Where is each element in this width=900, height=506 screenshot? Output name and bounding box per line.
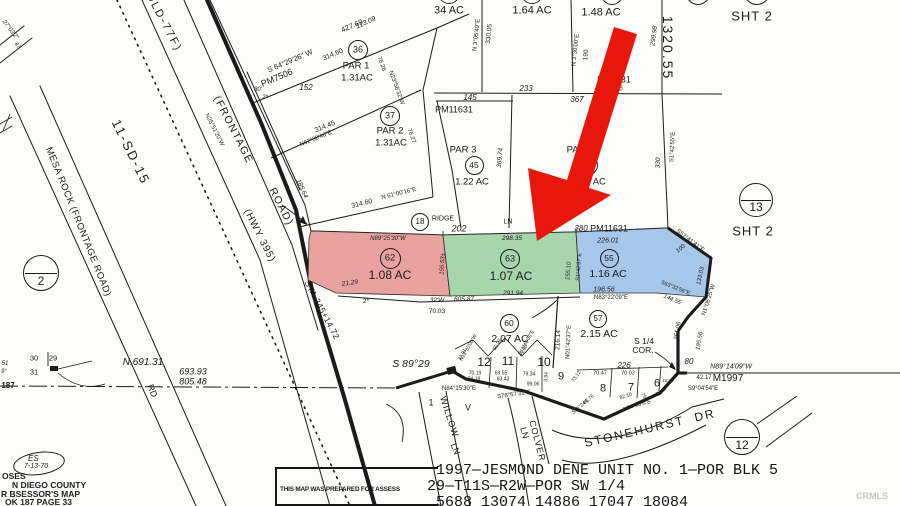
disclaimer-box: THIS MAP WAS PREPARED FOR ASSESS ASSUMED… <box>275 467 438 506</box>
watermark: CRMLS <box>856 491 888 501</box>
bottom-text-block: THIS MAP WAS PREPARED FOR ASSESS ASSUMED… <box>0 0 900 506</box>
assessor-parcel-map: 27°03'2"47(OLD-77F)11-SD-15MESA ROCK (FR… <box>0 0 900 506</box>
map-title-line-3: 5688 13074 14886 17047 18084 <box>436 494 688 506</box>
disclaimer-line-1: THIS MAP WAS PREPARED FOR ASSESS <box>280 486 438 493</box>
map-title-line-1: 1997—JESMOND DENE UNIT NO. 1—POR BLK 5 <box>436 462 778 479</box>
stamp-date: 7-13-70 <box>24 463 48 470</box>
map-title-line-2: 29—T11S—R2W—POR SW 1/4 <box>427 478 625 495</box>
county-text-4: OK 187 PAGE 33 <box>5 497 72 506</box>
stamp-initials: ES <box>28 454 39 463</box>
